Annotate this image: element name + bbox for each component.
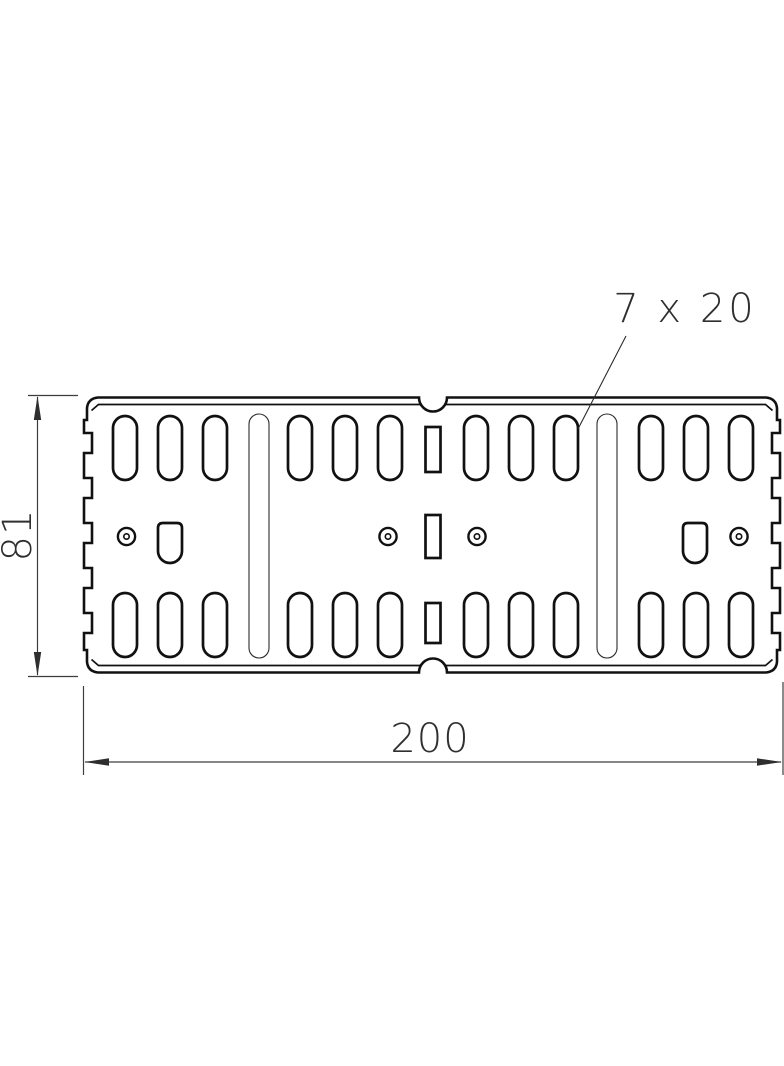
technical-drawing-canvas: 7 x 20 81 200: [0, 0, 784, 1066]
height-dim-label: 81: [0, 509, 41, 562]
long-slot-right: [597, 414, 617, 658]
oblong-slot: [113, 416, 137, 480]
drawing-svg: 7 x 20 81 200: [0, 0, 784, 1066]
oblong-slot: [113, 593, 137, 657]
oblong-slot: [464, 593, 488, 657]
d-shaped-hole-left: [158, 523, 182, 563]
oblong-slot: [684, 593, 708, 657]
oblong-slot: [203, 593, 227, 657]
height-dim-arrow-up: [34, 396, 41, 420]
oblong-slot: [158, 593, 182, 657]
center-rect-slot-top: [426, 427, 441, 472]
oblong-slot: [378, 593, 402, 657]
oblong-slot: [729, 416, 753, 480]
oblong-slot: [203, 416, 227, 480]
oblong-slot: [333, 593, 357, 657]
width-dim-arrow-left: [85, 758, 110, 765]
oblong-slot: [509, 416, 533, 480]
oblong-slot: [288, 593, 312, 657]
oblong-slot: [639, 593, 663, 657]
width-dim-arrow-right: [757, 758, 782, 765]
oblong-slot-callout-target: [554, 416, 578, 480]
oblong-slot: [509, 593, 533, 657]
oblong-slot: [464, 416, 488, 480]
oblong-slot: [378, 416, 402, 480]
d-shaped-hole-right: [683, 523, 707, 563]
width-dim-label: 200: [390, 716, 469, 762]
oblong-slot: [729, 593, 753, 657]
round-hole-center: [124, 534, 129, 539]
round-hole-center: [474, 534, 479, 539]
height-dimension: 81: [0, 396, 78, 677]
oblong-slot: [639, 416, 663, 480]
oblong-slot: [288, 416, 312, 480]
oblong-slot: [158, 416, 182, 480]
oblong-slot: [554, 593, 578, 657]
center-rect-slot-middle: [426, 515, 441, 558]
round-hole-center: [736, 534, 741, 539]
long-slot-left: [249, 414, 269, 658]
height-dim-arrow-down: [34, 652, 41, 676]
slot-size-label: 7 x 20: [613, 286, 756, 332]
round-hole-center: [385, 534, 390, 539]
oblong-slot: [684, 416, 708, 480]
width-dimension: 200: [84, 682, 784, 775]
oblong-slot: [333, 416, 357, 480]
center-rect-slot-bottom: [426, 603, 441, 643]
